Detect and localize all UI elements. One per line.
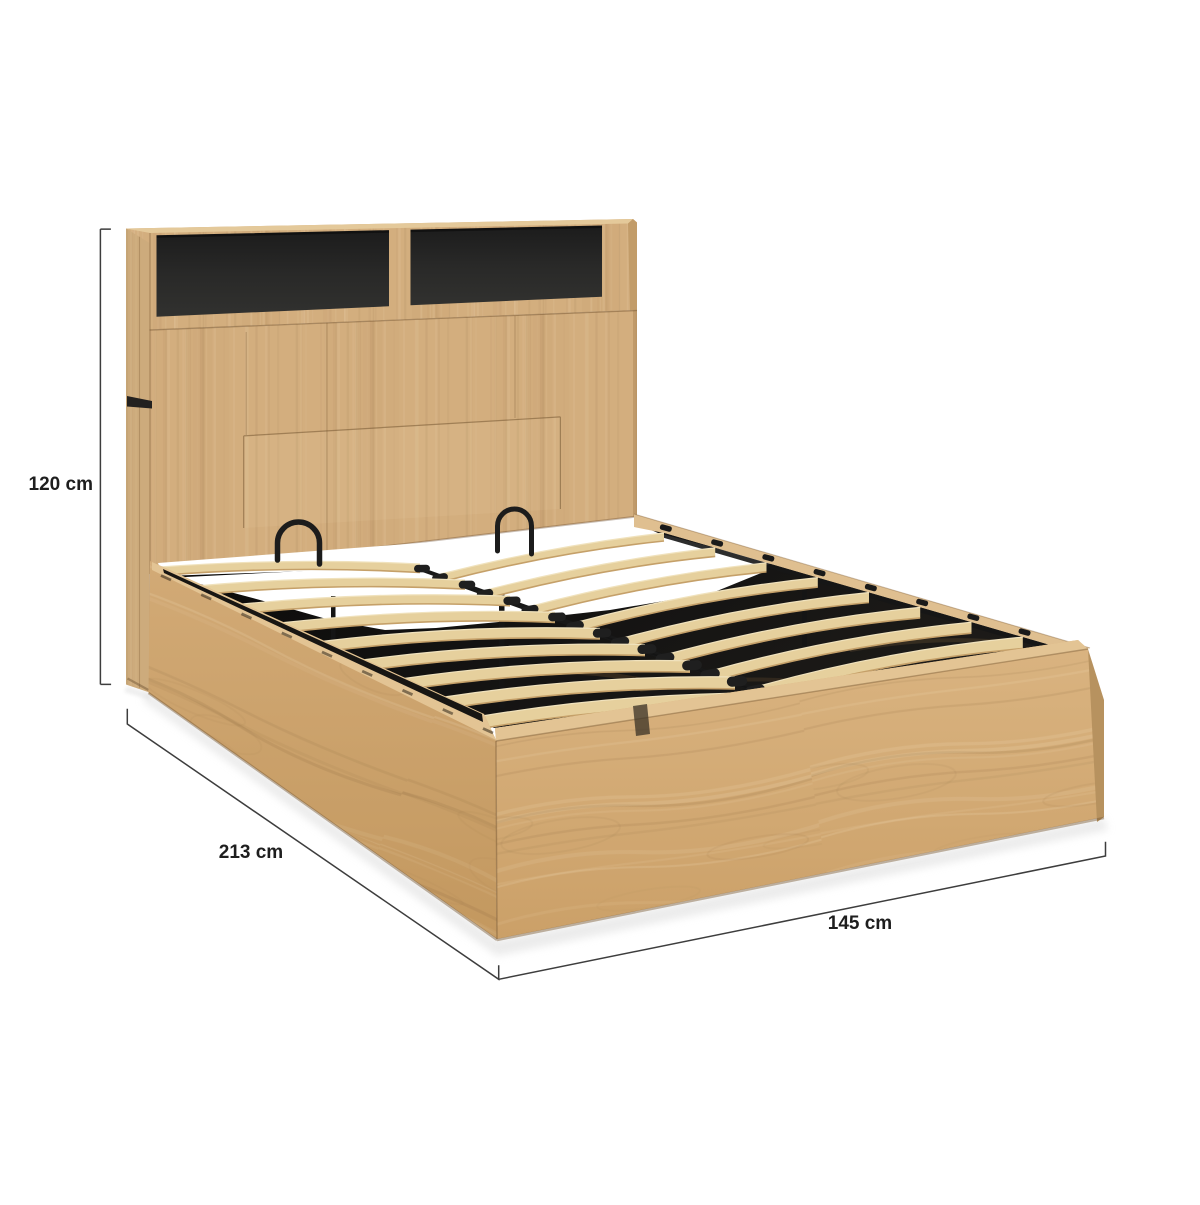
svg-text:120 cm: 120 cm <box>29 474 93 495</box>
svg-text:145 cm: 145 cm <box>828 913 892 934</box>
svg-text:213 cm: 213 cm <box>219 842 283 863</box>
